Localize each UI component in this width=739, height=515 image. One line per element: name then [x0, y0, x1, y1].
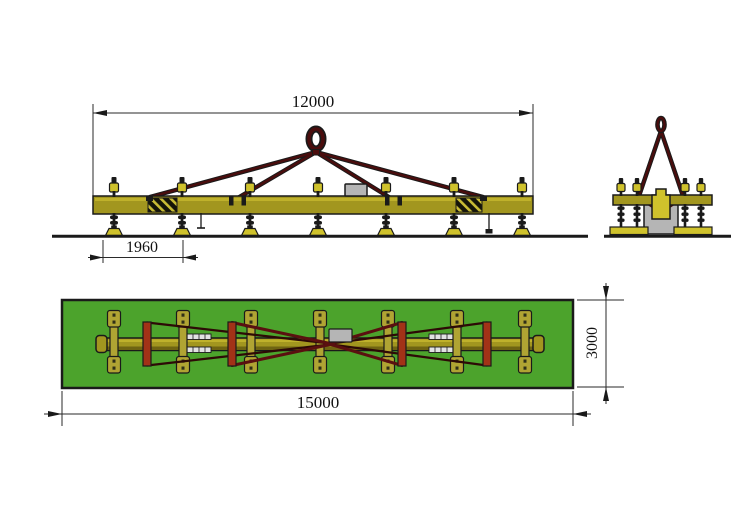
foot-pad [610, 227, 648, 235]
beam-end-cap [533, 336, 544, 353]
anchor-bar [483, 322, 491, 366]
adjuster-rack [187, 334, 211, 340]
dim-plate-width: 3000 [577, 283, 624, 404]
cross-arm [108, 311, 121, 374]
technical-drawing-canvas: 12000 [0, 0, 739, 515]
adjuster-rack [187, 347, 211, 353]
beam-end-cap [96, 336, 107, 353]
side-sling [639, 118, 683, 196]
foot-pad [674, 227, 712, 235]
plate-length-label: 15000 [297, 393, 340, 412]
foot-spacing-label: 1960 [126, 239, 158, 256]
adjustment-rack-right [456, 198, 482, 212]
anchor-bar [143, 322, 151, 366]
plan-view: 3000 15000 [44, 283, 624, 426]
anchor-bar [228, 322, 236, 366]
control-box [345, 184, 367, 196]
adjuster-rack [429, 334, 453, 340]
dim-arrow-right [519, 110, 533, 116]
dim-plate-length: 15000 [44, 391, 591, 426]
center-bracket [652, 189, 670, 219]
front-view: 12000 [52, 92, 588, 263]
dim-foot-spacing: 1960 [88, 239, 198, 263]
cross-arm [519, 311, 532, 374]
main-beam [93, 196, 533, 234]
cross-arm [177, 311, 190, 374]
side-view [604, 118, 731, 236]
dim-arrow-left [93, 110, 107, 116]
cross-arm [451, 311, 464, 374]
control-box [329, 329, 352, 342]
beam-length-label: 12000 [292, 92, 335, 111]
lifting-beam-drawing: 12000 [0, 0, 739, 515]
plate-width-label: 3000 [584, 327, 601, 359]
anchor-bar [398, 322, 406, 366]
adjuster-rack [429, 347, 453, 353]
